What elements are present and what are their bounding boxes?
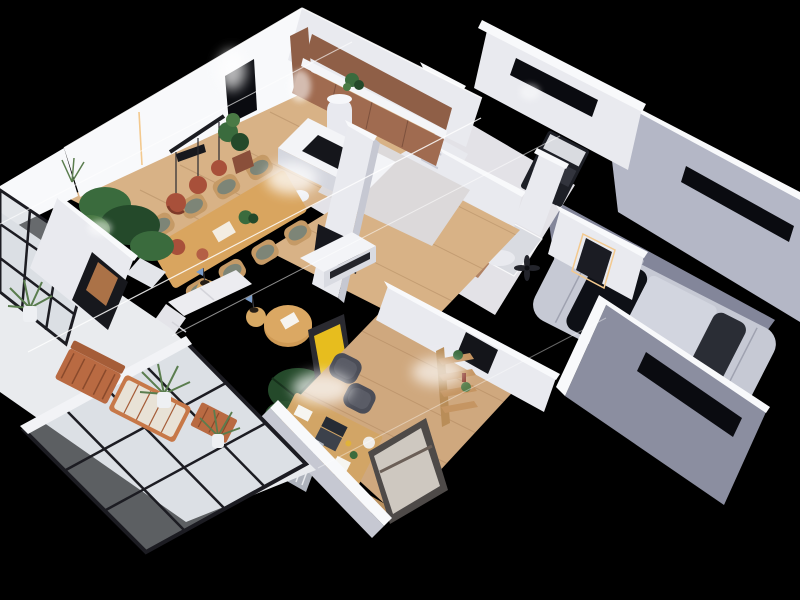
coffee-table	[264, 305, 312, 347]
palm-pot	[23, 306, 37, 322]
pendant-lamp	[211, 160, 227, 176]
round-column-top	[327, 94, 352, 104]
pendant-lamp	[189, 176, 207, 194]
shelf-plant	[453, 350, 463, 360]
palm-pot	[157, 392, 171, 408]
isometric-floor-plan	[0, 0, 800, 600]
palm-pot	[212, 434, 224, 448]
floor-plan-render-stage	[0, 0, 800, 600]
